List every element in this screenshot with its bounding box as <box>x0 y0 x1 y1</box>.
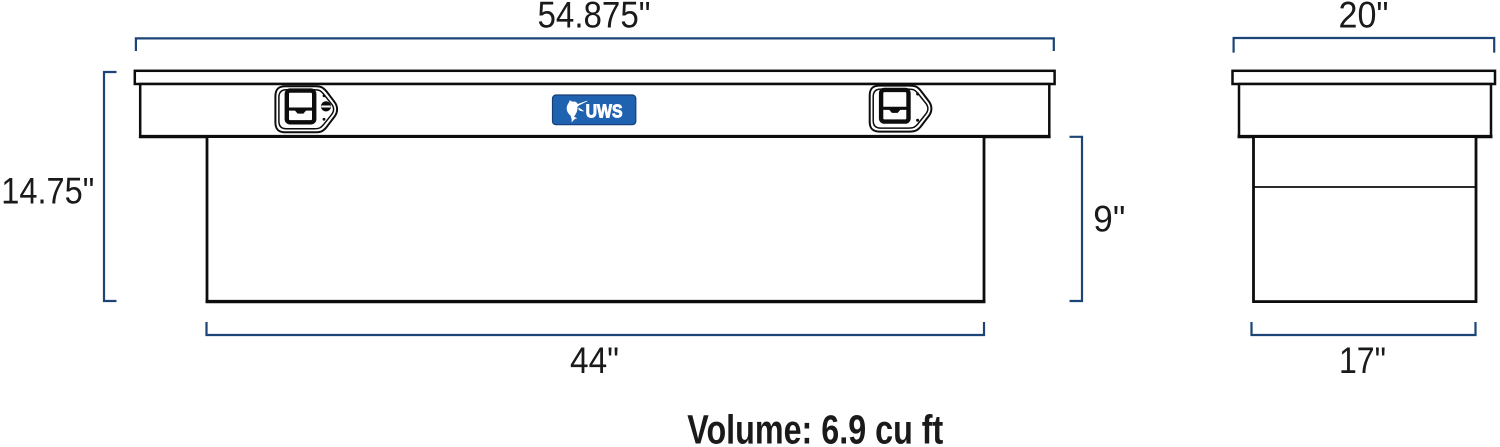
svg-text:44": 44" <box>570 339 619 381</box>
svg-text:54.875": 54.875" <box>538 0 651 36</box>
svg-text:UWS: UWS <box>586 101 623 122</box>
svg-text:9": 9" <box>1093 198 1125 240</box>
svg-text:Volume: 6.9 cu ft: Volume: 6.9 cu ft <box>687 406 943 447</box>
svg-text:20": 20" <box>1339 0 1389 36</box>
svg-text:14.75": 14.75" <box>1 170 94 212</box>
svg-text:17": 17" <box>1339 339 1386 381</box>
